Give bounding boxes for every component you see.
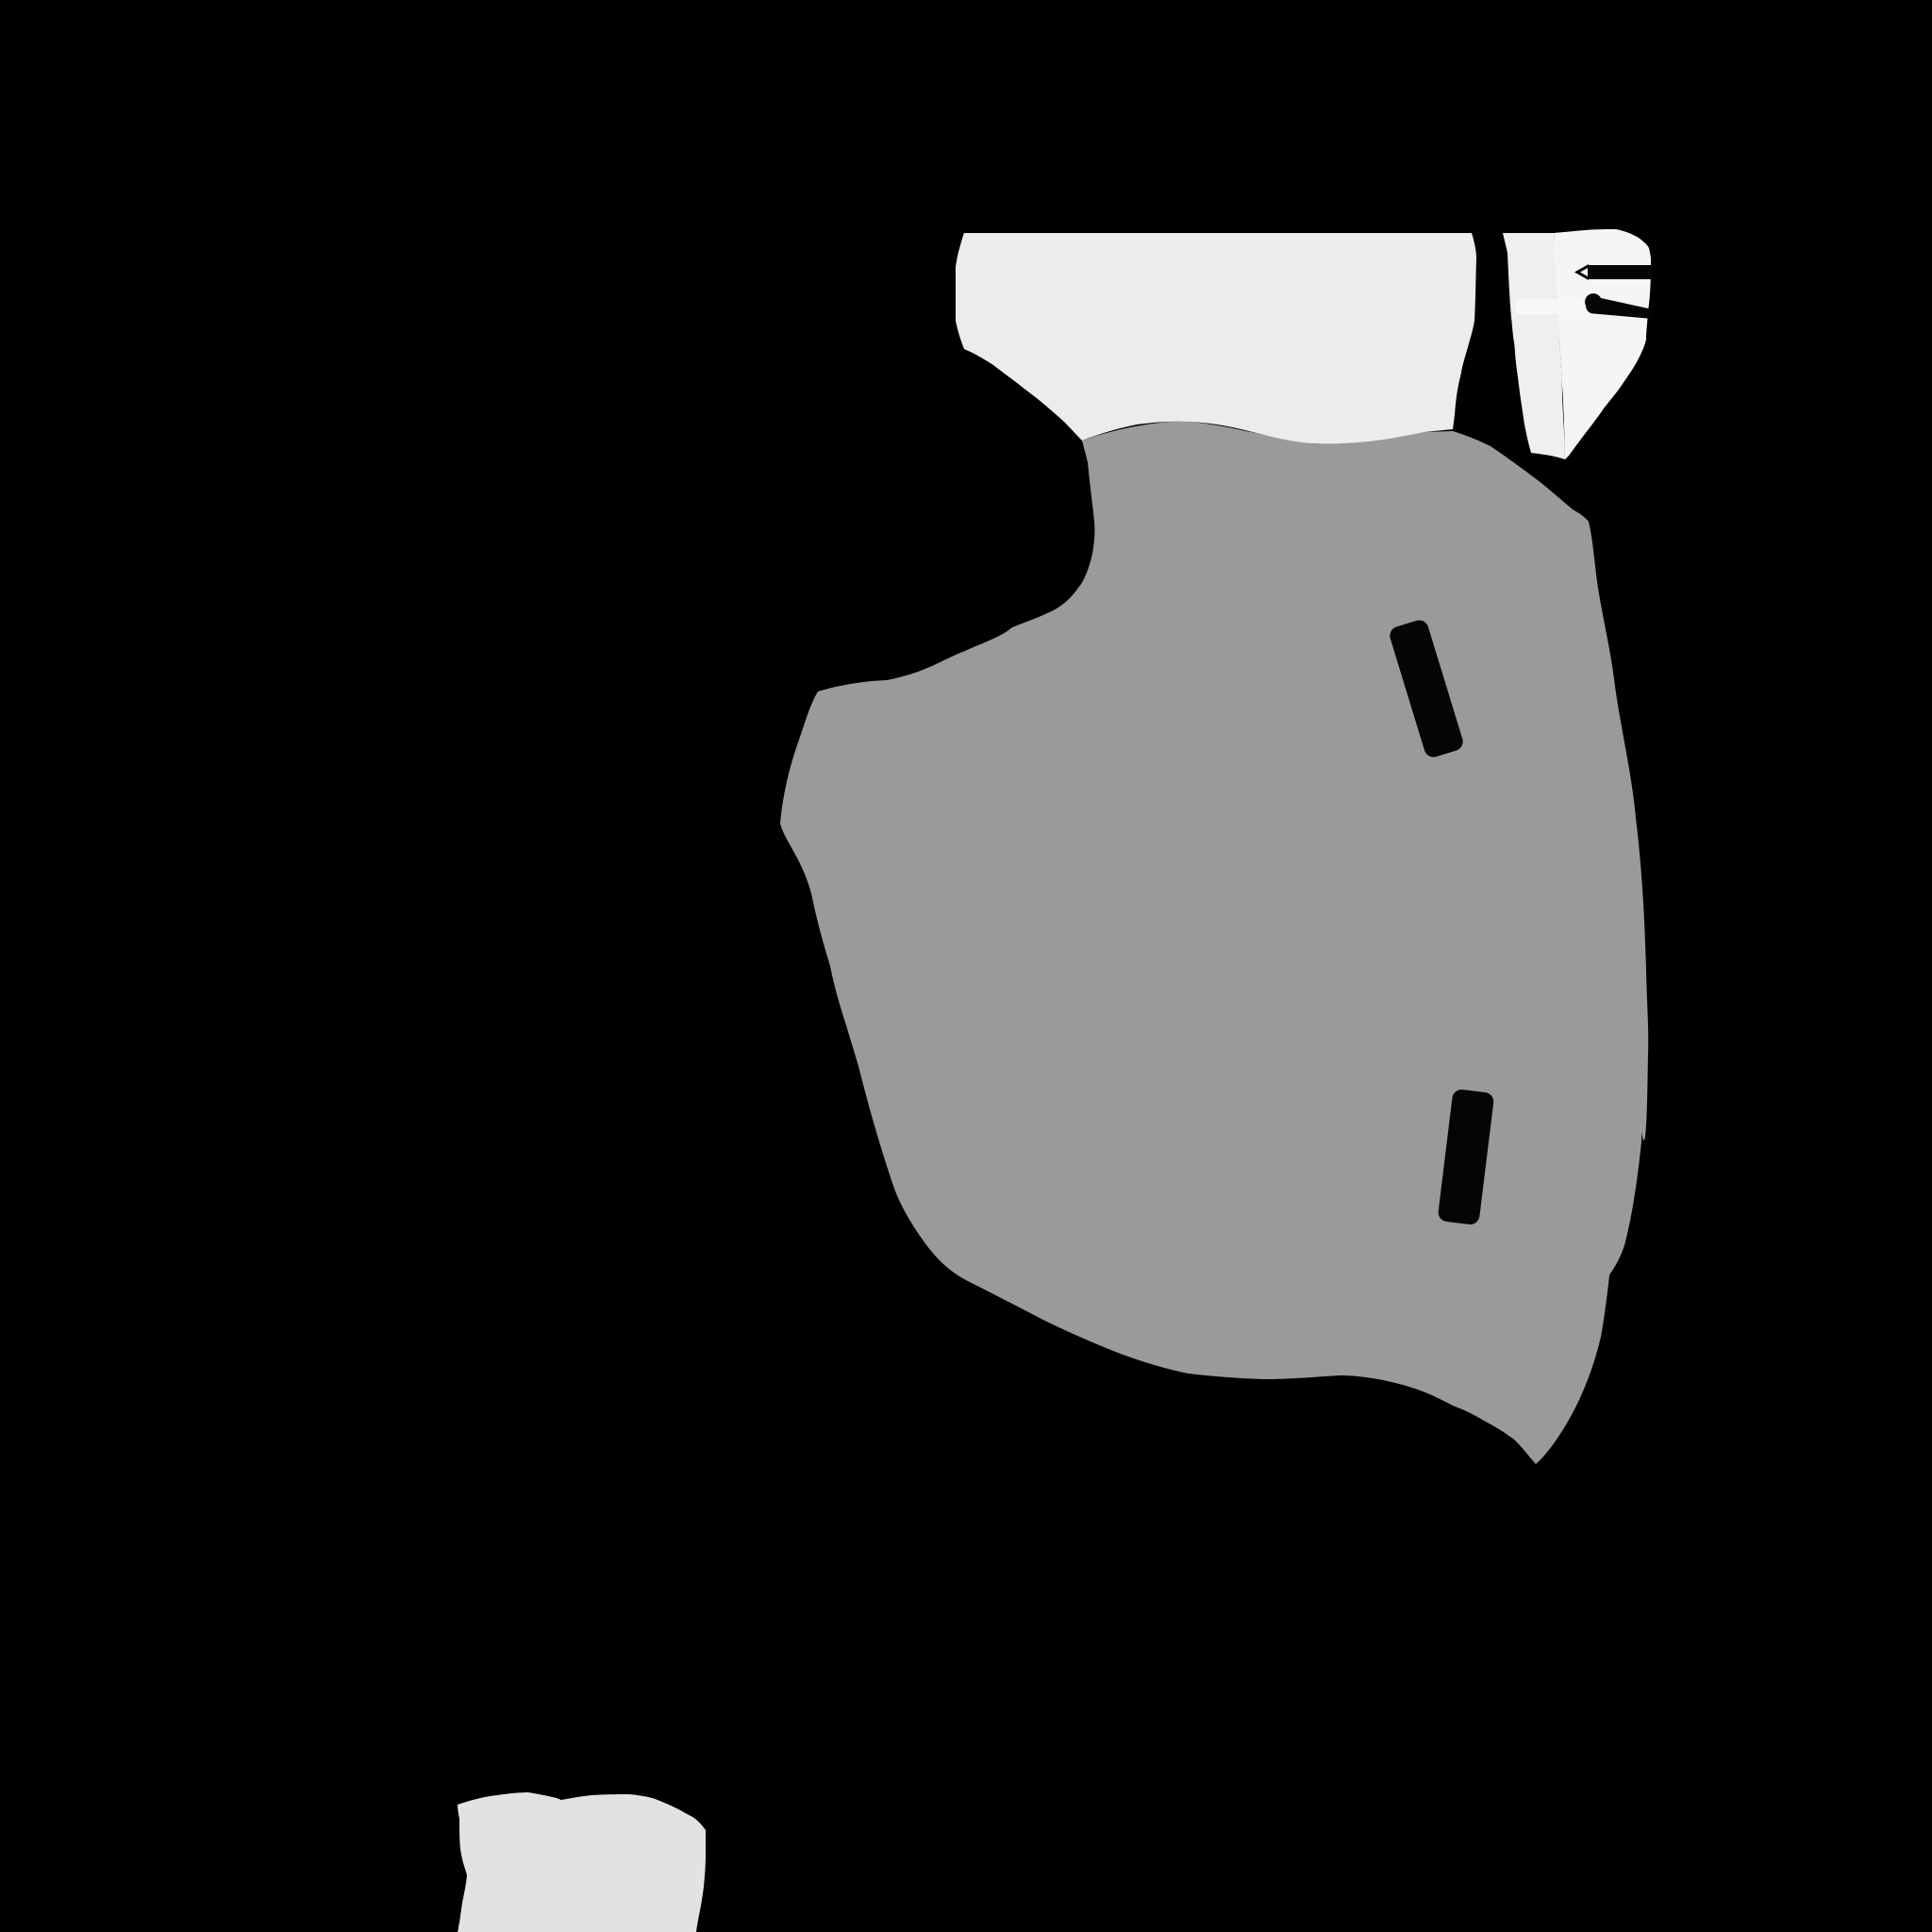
object-bar-top — [1587, 265, 1653, 279]
bottom-fragment-mask — [458, 1792, 706, 1932]
segmentation-mask-stage — [0, 0, 1932, 1932]
slot-highlight-band — [1516, 299, 1585, 314]
mask-canvas — [0, 0, 1932, 1932]
